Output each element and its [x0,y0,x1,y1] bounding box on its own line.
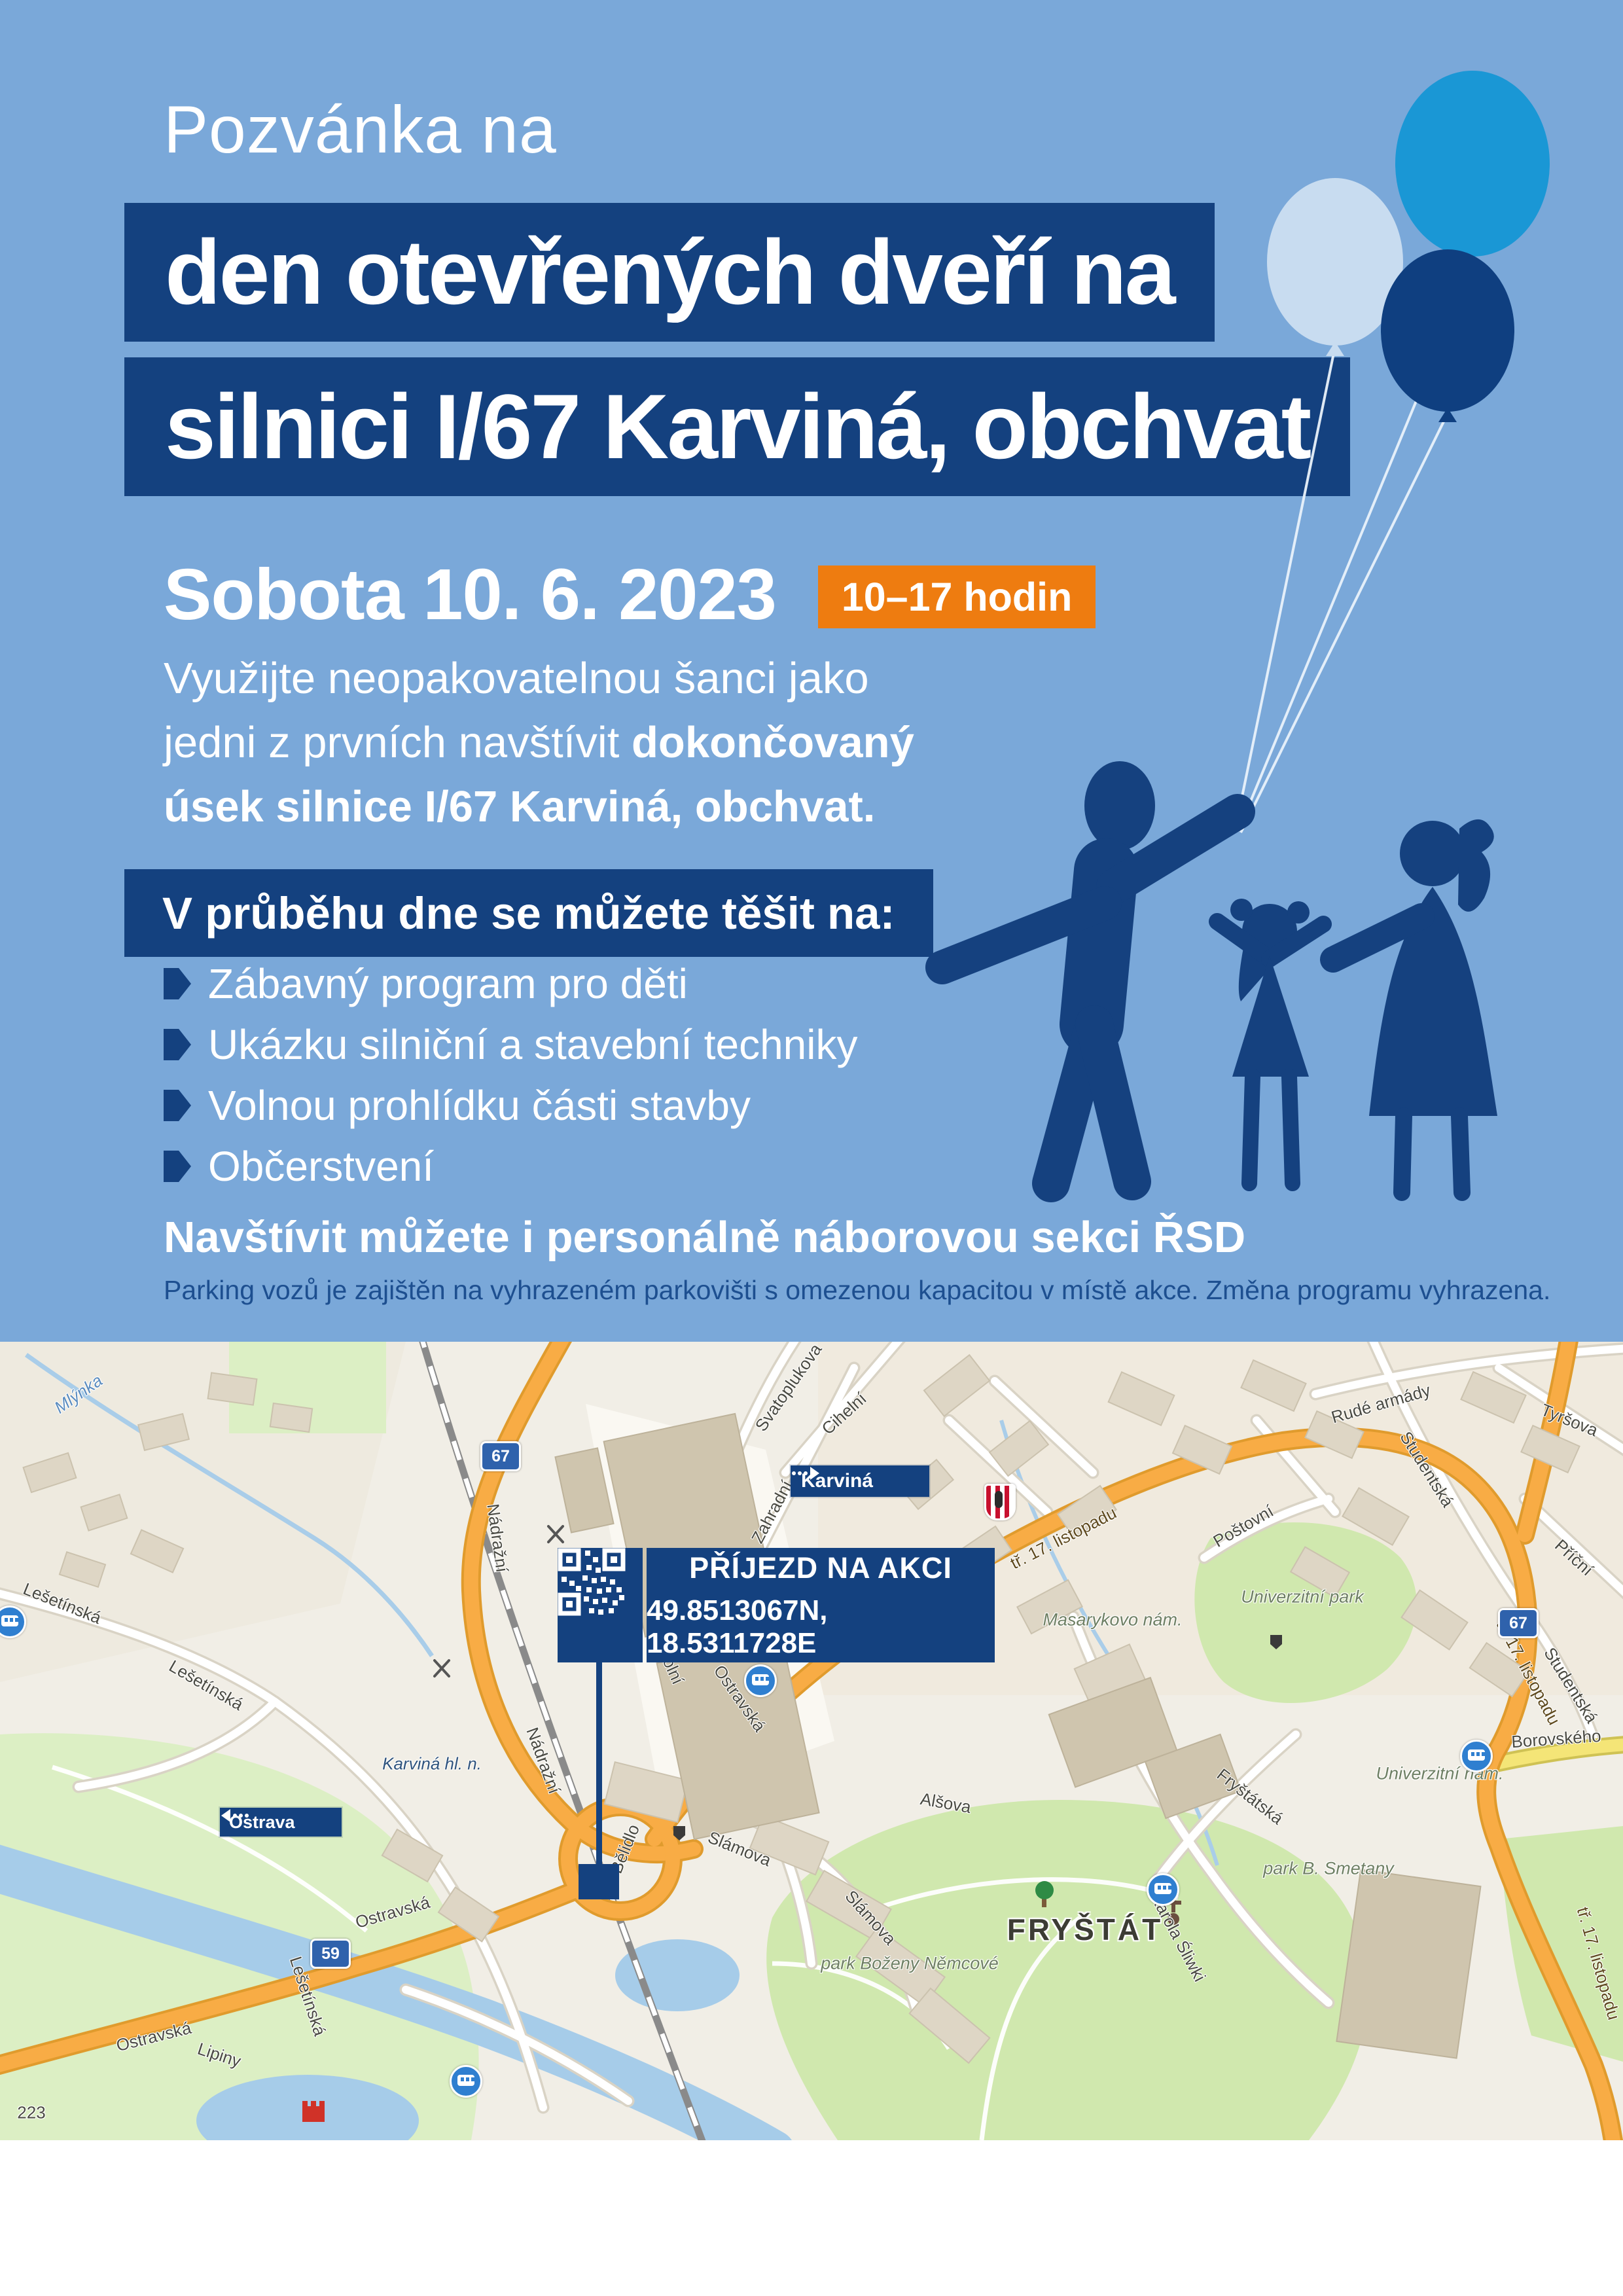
family-balloons-illustration [851,39,1623,1211]
kfc-marker-icon [984,1484,1016,1520]
road-shield-67-south: 67 [1498,1608,1539,1638]
arrow-bullet-icon [164,968,191,999]
section-title-bar: V průběhu dne se můžete těšit na: [124,869,933,957]
map-label: park Boženy Němcové [821,1954,999,1974]
map-graphics [0,1342,1623,2140]
arrival-info-box: PŘÍJEZD NA AKCI 49.8513067N, 18.5311728E [647,1548,995,1662]
arrival-title: PŘÍJEZD NA AKCI [689,1551,952,1585]
arrival-pin-marker [579,1864,619,1899]
bus-stop-icon [450,2065,482,2098]
map-label: Masarykovo nám. [1043,1610,1182,1630]
list-item-label: Volnou prohlídku části stavby [208,1081,751,1130]
direction-badge-ostrava: Ostrava [220,1808,342,1837]
parking-note: Parking vozů je zajištěn na vyhrazeném p… [164,1275,1550,1306]
program-list: Zábavný program pro dětiUkázku silniční … [164,962,857,1206]
list-item: Občerstvení [164,1145,857,1188]
arrow-bullet-icon [164,1151,191,1182]
dotted-arrow-right-icon [791,1465,821,1481]
list-item-label: Zábavný program pro děti [208,960,688,1008]
location-map: MlýnkaLešetínskáLešetínskáLešetínskáLipi… [0,1342,1623,2140]
map-label: 223 [17,2103,45,2123]
road-shield-59: 59 [310,1939,351,1969]
poster-kicker: Pozvánka na [164,92,557,168]
hr-section-note: Navštívit můžete i personálně náborovou … [164,1212,1245,1263]
playground-icon [302,2101,325,2122]
direction-badge-karvina: Karviná [791,1465,929,1497]
poster: Pozvánka na den otevřených dveří na siln… [0,0,1623,2296]
intro-line-3: úsek silnice I/67 Karviná, obchvat. [164,775,914,839]
intro-line-2: jedni z prvních navštívit dokončovaný [164,711,914,775]
qr-code [558,1548,643,1662]
balloon-navy-icon [1381,249,1514,422]
arrow-bullet-icon [164,1090,191,1121]
dotted-arrow-left-icon [220,1808,250,1823]
list-item-label: Ukázku silniční a stavební techniky [208,1020,857,1069]
district-label: FRYŠTÁT [1007,1912,1163,1947]
balloon-cyan-icon [1395,71,1550,268]
arrival-pin-line [596,1662,602,1864]
bus-stop-icon [744,1664,777,1697]
arrow-bullet-icon [164,1029,191,1060]
family-silhouette [942,761,1497,1193]
event-date: Sobota 10. 6. 2023 [164,553,776,636]
list-item: Volnou prohlídku části stavby [164,1084,857,1127]
bus-stop-icon [1460,1740,1493,1772]
footer: ŘSD ČR ŘEDITELSTVÍ SILNIC A DÁLNIC ČR SK… [0,2140,1623,2296]
map-label: park B. Smetany [1263,1859,1394,1879]
map-label: Univerzitní park [1241,1587,1364,1607]
list-item: Ukázku silniční a stavební techniky [164,1023,857,1066]
intro-paragraph: Využijte neopakovatelnou šanci jako jedn… [164,647,914,839]
map-label: Karviná hl. n. [382,1754,482,1774]
bus-stop-icon [1147,1873,1179,1906]
list-item: Zábavný program pro děti [164,962,857,1005]
road-shield-67: 67 [480,1441,521,1471]
list-item-label: Občerstvení [208,1142,434,1191]
arrival-coordinates: 49.8513067N, 18.5311728E [647,1594,995,1660]
intro-line-1: Využijte neopakovatelnou šanci jako [164,647,914,711]
